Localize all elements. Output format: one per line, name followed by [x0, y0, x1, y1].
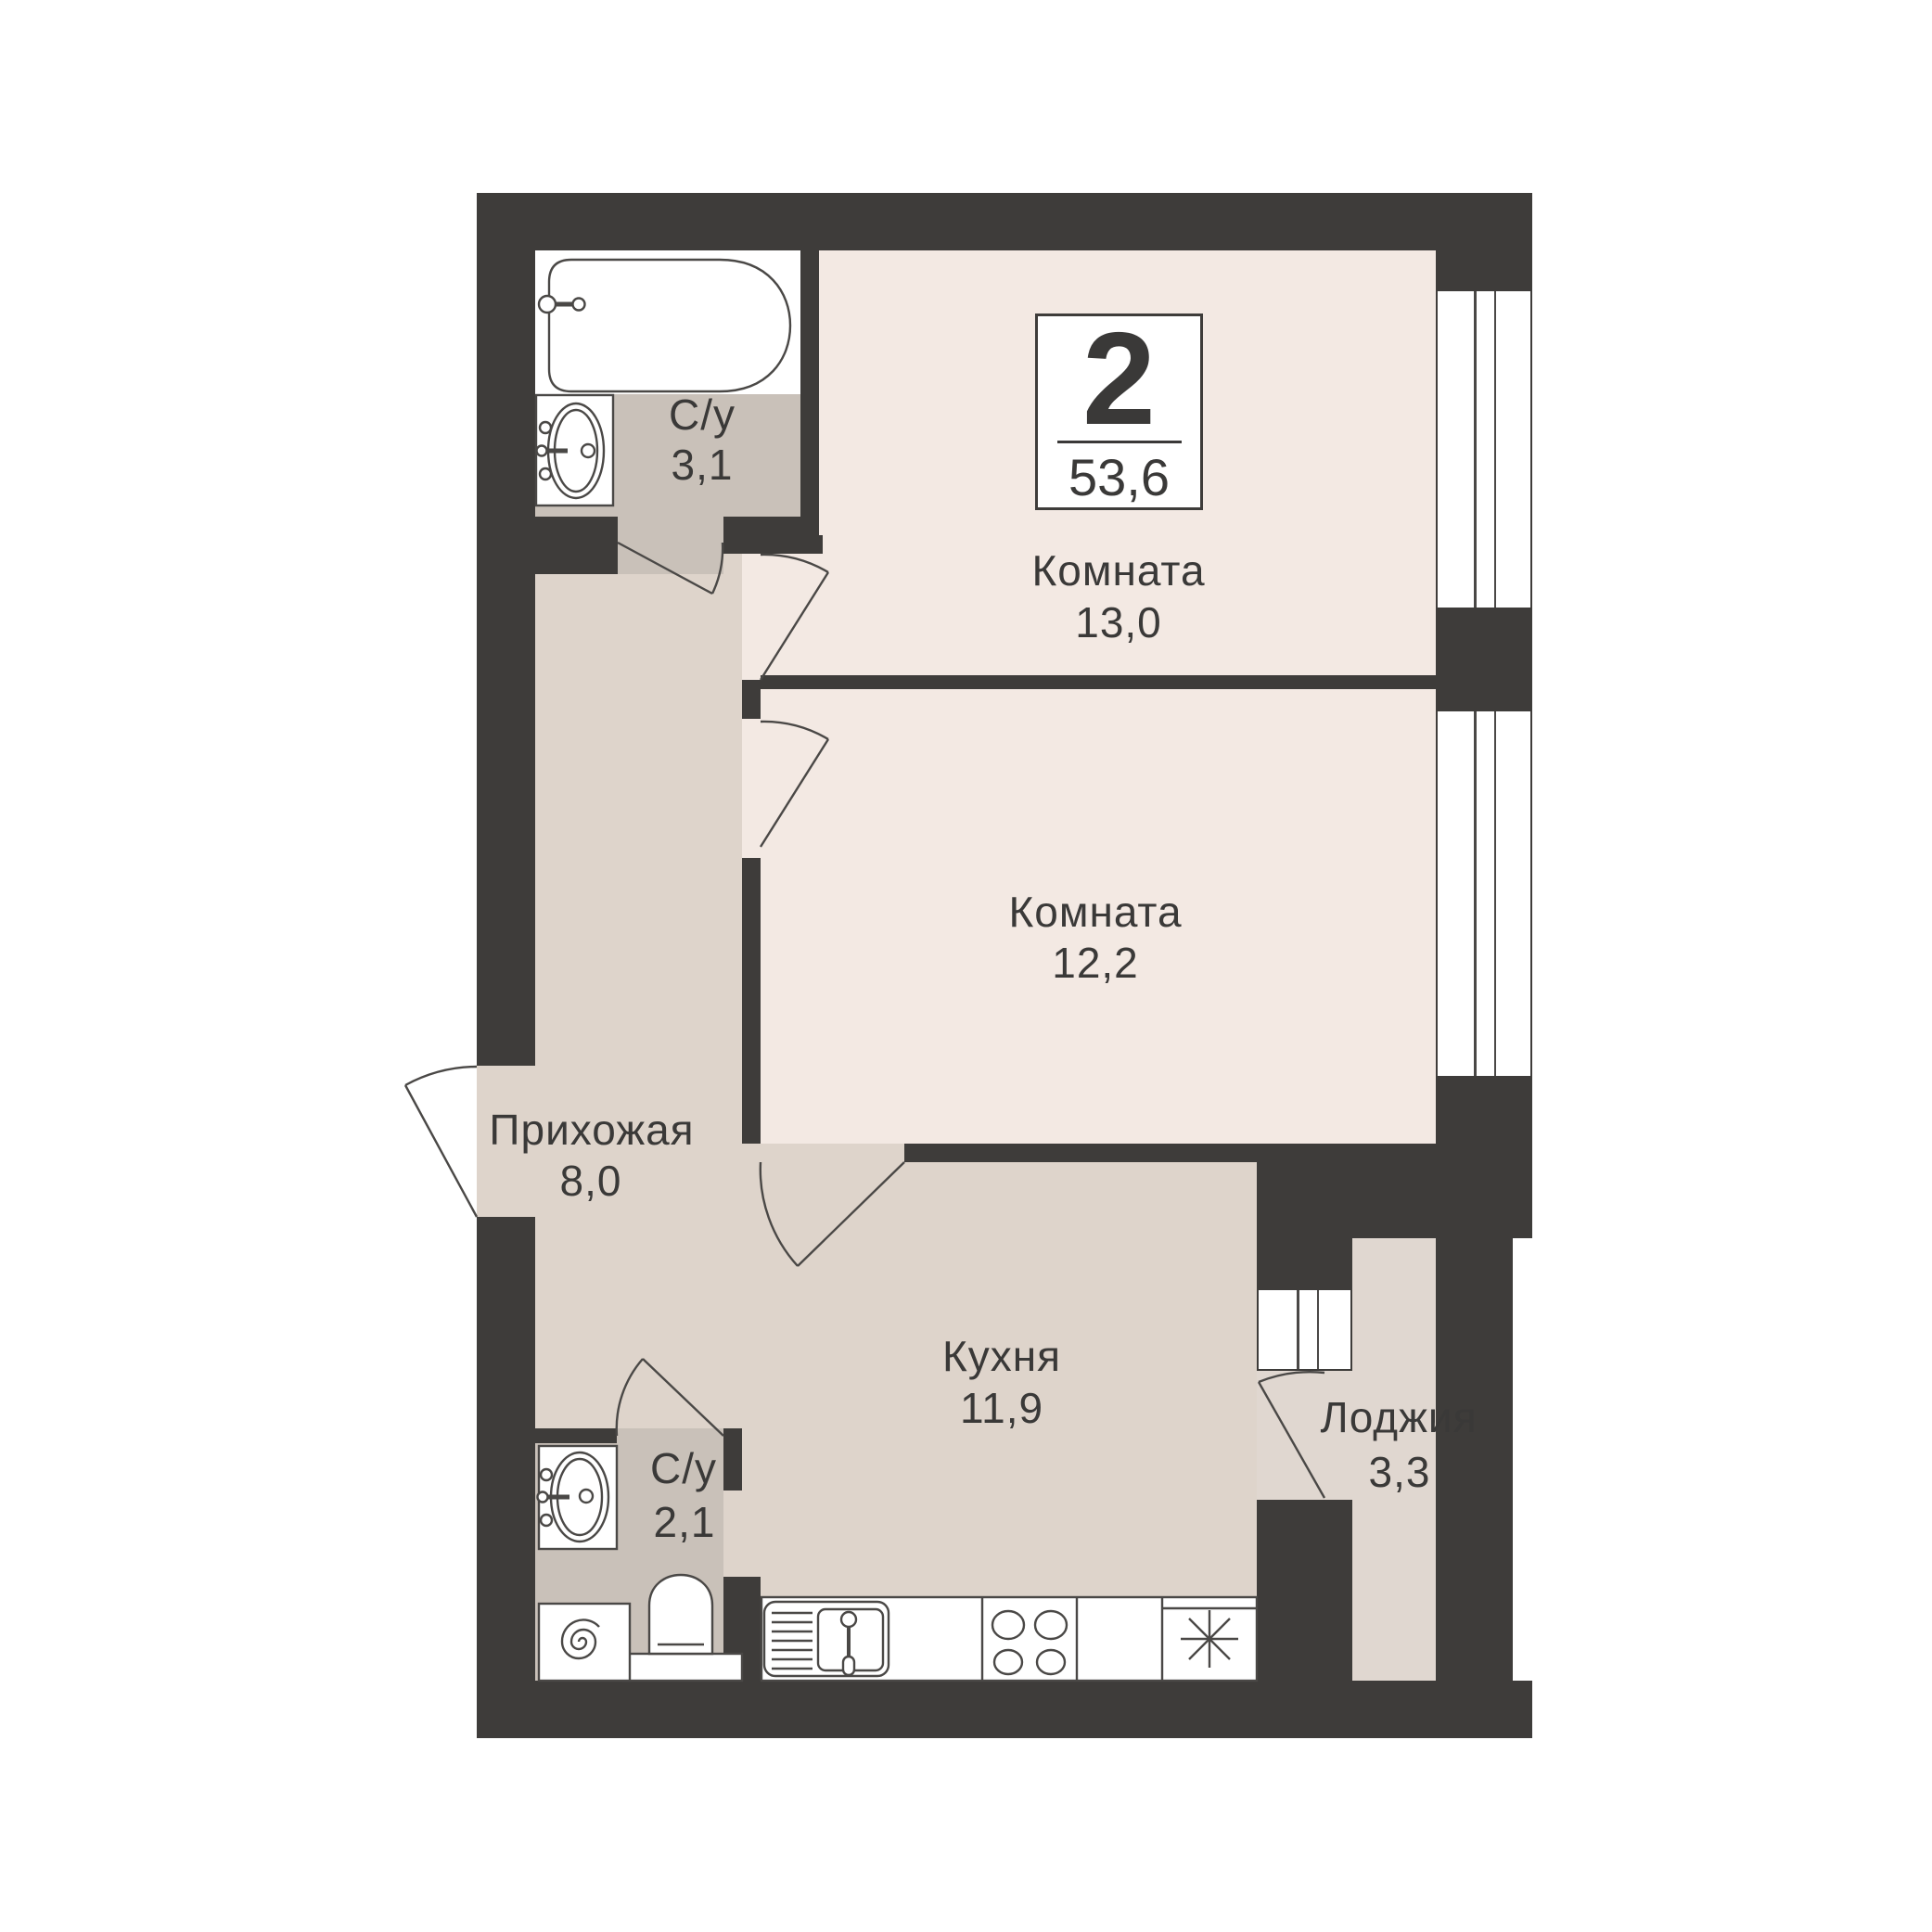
badge-rooms-count: 2	[1082, 324, 1156, 435]
door-arc-loggia	[1259, 1372, 1324, 1498]
room-label-hallway: Прихожая	[489, 1105, 694, 1155]
door-arc-entry	[405, 1067, 477, 1217]
badge-total-area: 53,6	[1068, 447, 1170, 507]
door-arc-bath2	[617, 1359, 723, 1436]
kitchen-sink-icon	[764, 1602, 889, 1676]
bathtub-icon	[539, 260, 790, 391]
door-arc-room2	[761, 722, 828, 847]
room-area-bath1: 3,1	[672, 440, 734, 490]
room-area-hallway: 8,0	[560, 1156, 622, 1206]
room-area-loggia: 3,3	[1369, 1447, 1431, 1497]
sink-icon	[538, 1446, 618, 1549]
door-arc-kitchen	[761, 1162, 904, 1266]
room-label-room1: Комната	[1031, 545, 1205, 595]
room-label-bath1: С/у	[669, 390, 736, 440]
room-area-room2: 12,2	[1052, 938, 1139, 988]
badge-divider	[1057, 441, 1182, 443]
room-label-loggia: Лоджия	[1321, 1392, 1478, 1442]
room-area-bath2: 2,1	[654, 1497, 716, 1547]
fixtures-layer	[0, 0, 1932, 1932]
room-area-room1: 13,0	[1075, 597, 1162, 647]
room-label-kitchen: Кухня	[942, 1331, 1061, 1381]
sink-icon	[536, 395, 613, 505]
door-arc-bath1	[618, 543, 723, 594]
room-label-bath2: С/у	[650, 1443, 717, 1493]
washing-machine-icon	[539, 1604, 630, 1681]
room-area-kitchen: 11,9	[960, 1383, 1043, 1433]
room-label-room2: Комната	[1008, 887, 1182, 937]
apartment-badge: 2 53,6	[1035, 313, 1203, 510]
door-arc-room1	[761, 555, 828, 680]
fridge-snowflake-icon	[1181, 1610, 1238, 1668]
toilet-icon	[623, 1575, 742, 1681]
floor-plan: С/у 3,1 Комната 13,0 Комната 12,2 Прихож…	[0, 0, 1932, 1932]
